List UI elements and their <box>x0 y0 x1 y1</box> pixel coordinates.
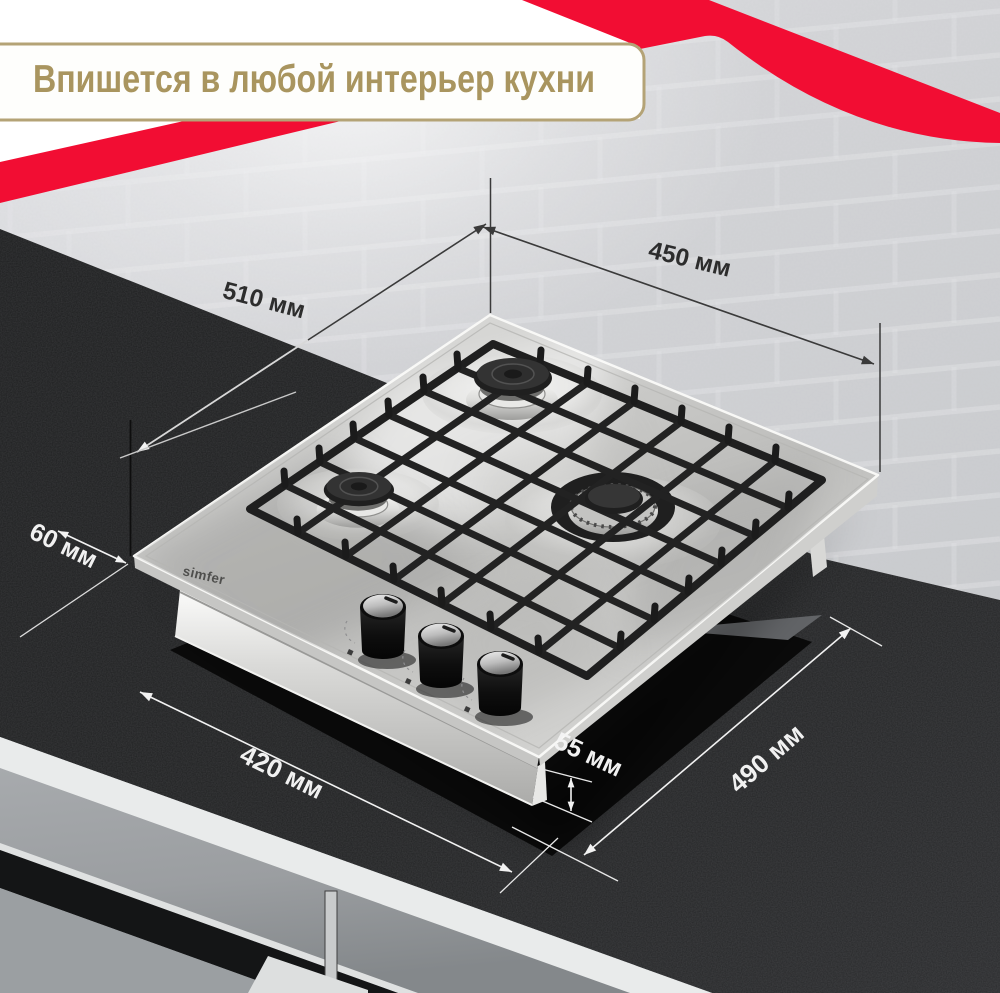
svg-text:Впишется в любой интерьер кухн: Впишется в любой интерьер кухни <box>33 58 595 101</box>
